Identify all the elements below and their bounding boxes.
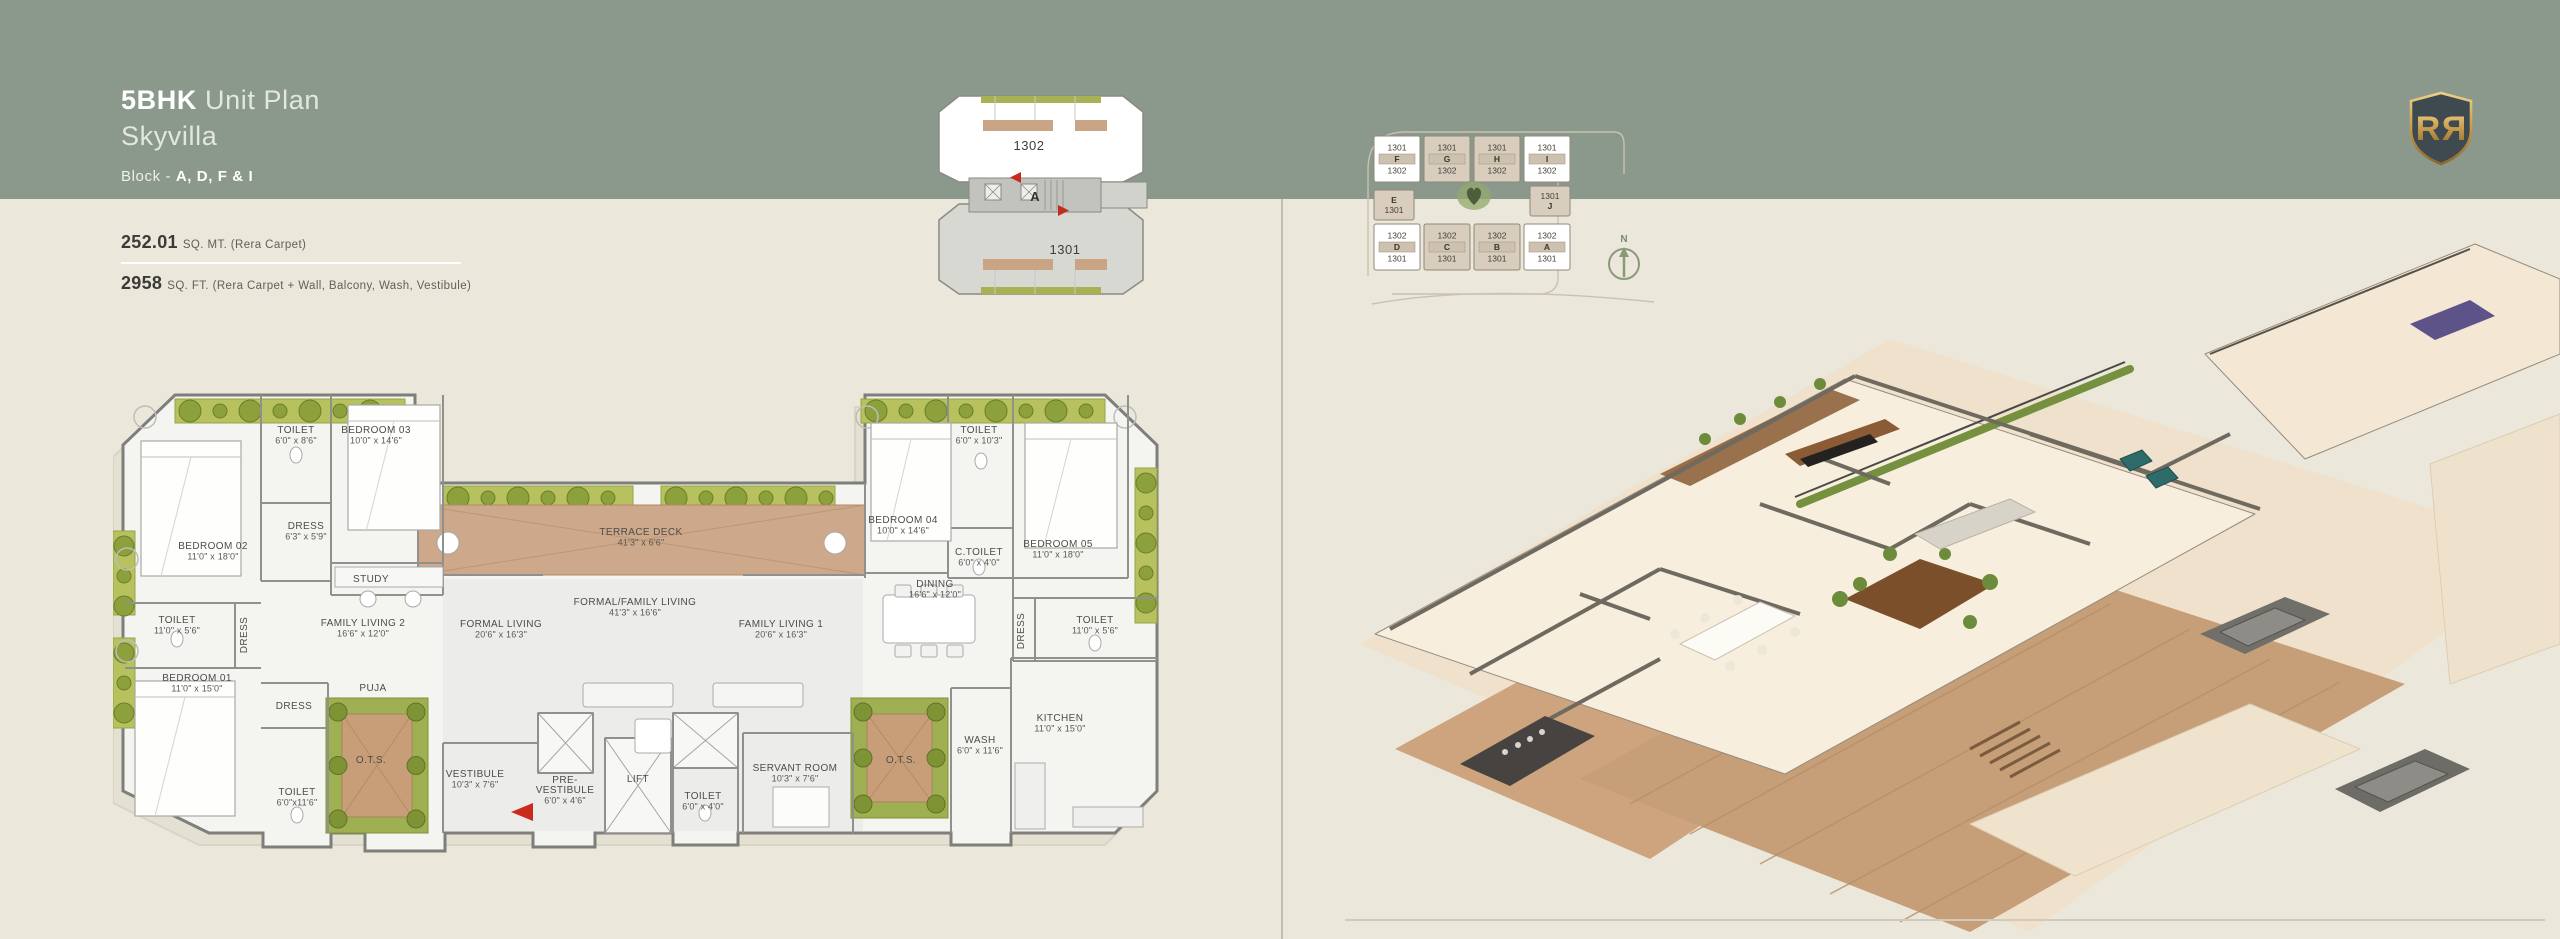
site-block-label: 1302 <box>1388 166 1407 176</box>
title-subtitle: Skyvilla <box>121 118 320 154</box>
title-bhk: 5BHK <box>121 85 197 115</box>
dining-chair <box>921 645 937 657</box>
tree <box>213 404 227 418</box>
site-block-label: 1301 <box>1488 143 1507 153</box>
study-desk <box>335 567 443 587</box>
room-label: C.TOILET6'0" x 4'0" <box>955 547 1003 568</box>
tree <box>927 795 945 813</box>
monogram-r: R <box>2416 110 2441 148</box>
site-block: 1301F1302 <box>1374 136 1420 182</box>
room-label: DRESS <box>239 617 250 653</box>
tree <box>407 757 425 775</box>
site-block: 1301G1302 <box>1424 136 1470 182</box>
room-label: DINING16'6" x 12'0" <box>909 579 961 600</box>
tree <box>407 703 425 721</box>
tree <box>985 400 1007 422</box>
tree <box>1045 400 1067 422</box>
title-rest: Unit Plan <box>197 85 320 115</box>
key-plan-unit-1302: 1302 <box>1014 138 1045 153</box>
site-block-label: H <box>1494 154 1500 164</box>
tree <box>329 810 347 828</box>
tree <box>179 400 201 422</box>
tree <box>1136 473 1156 493</box>
tree <box>854 703 872 721</box>
bed <box>135 681 235 816</box>
key-plan-planter-bottom <box>981 287 1101 294</box>
tree <box>299 400 321 422</box>
key-plan-footprint <box>939 96 1147 294</box>
tree <box>1079 404 1093 418</box>
site-block-label: 1302 <box>1488 166 1507 176</box>
panel-divider <box>1281 199 1283 939</box>
kitchen-counter-2d <box>1015 763 1045 829</box>
tree <box>601 491 615 505</box>
header-band <box>0 0 2560 199</box>
room-label: DRESS <box>1016 613 1027 649</box>
deck-chair <box>437 532 459 554</box>
tree <box>854 795 872 813</box>
tree <box>541 491 555 505</box>
room-label: O.T.S. <box>356 755 386 766</box>
tree <box>1139 566 1153 580</box>
block-line: Block - A, D, F & I <box>121 168 320 185</box>
room-label: KITCHEN11'0" x 15'0" <box>1034 713 1085 734</box>
room-label: TOILET6'0" x 8'6" <box>275 425 317 446</box>
planter-strip <box>861 399 1105 423</box>
servant-bed <box>773 787 829 827</box>
area-sqmt-label: SQ. MT. (Rera Carpet) <box>183 239 306 251</box>
tree <box>114 703 134 723</box>
tree <box>114 596 134 616</box>
tree <box>239 400 261 422</box>
site-block-label: 1301 <box>1538 143 1557 153</box>
room-label: LIFT <box>627 774 649 785</box>
tree <box>1019 404 1033 418</box>
tree <box>854 749 872 767</box>
bed <box>348 405 440 530</box>
tree <box>1136 593 1156 613</box>
block-value: A, D, F & I <box>176 168 253 185</box>
tree <box>927 703 945 721</box>
wc <box>975 453 987 469</box>
area-divider <box>121 262 461 264</box>
room-label: STUDY <box>353 574 389 585</box>
wc <box>291 807 303 823</box>
room-label: PUJA <box>359 683 386 694</box>
area-sqft-value: 2958 <box>121 273 162 293</box>
room-label: TOILET11'0" x 5'6" <box>154 615 200 636</box>
room-label: BEDROOM 0310'0" x 14'6" <box>341 425 411 446</box>
tree <box>329 703 347 721</box>
tree <box>117 569 131 583</box>
tree <box>1136 533 1156 553</box>
site-block-label: G <box>1444 154 1451 164</box>
dining-table <box>883 595 975 643</box>
tree <box>117 676 131 690</box>
area-sqmt-value: 252.01 <box>121 232 178 252</box>
dining-chair <box>895 645 911 657</box>
area-info: 252.01SQ. MT. (Rera Carpet) 2958SQ. FT. … <box>121 232 471 294</box>
study-chair <box>360 591 376 607</box>
area-sqft-label: SQ. FT. (Rera Carpet + Wall, Balcony, Wa… <box>167 280 471 292</box>
tree <box>927 749 945 767</box>
block-prefix: Block - <box>121 168 176 185</box>
tree <box>959 404 973 418</box>
tree <box>1139 506 1153 520</box>
dining-chair <box>947 645 963 657</box>
key-plan: 1302 1301 A <box>925 86 1157 304</box>
wc <box>1089 635 1101 651</box>
tree <box>407 810 425 828</box>
top-right-rooms <box>2205 244 2560 459</box>
brand-logo-shield: R R <box>2404 90 2478 166</box>
room-label: BEDROOM 0410'0" x 14'6" <box>868 515 938 536</box>
room-label: TOILET6'0"x11'6" <box>277 787 318 808</box>
page-title: 5BHK Unit Plan Skyvilla Block - A, D, F … <box>121 82 320 185</box>
room-label: TOILET6'0" x 10'3" <box>956 425 1003 446</box>
room-label: DRESS6'3" x 5'9" <box>285 521 327 542</box>
site-block: 1301H1302 <box>1474 136 1520 182</box>
room-label: VESTIBULE10'3" x 7'6" <box>446 769 505 790</box>
site-block: 1301I1302 <box>1524 136 1570 182</box>
study-chair <box>405 591 421 607</box>
tree <box>759 491 773 505</box>
floor-plan-2d: TOILET6'0" x 8'6"BEDROOM 0310'0" x 14'6"… <box>113 383 1168 863</box>
room-label: BEDROOM 0211'0" x 18'0" <box>178 541 248 562</box>
render-3d <box>1330 204 2560 934</box>
tree <box>333 404 347 418</box>
page: 5BHK Unit Plan Skyvilla Block - A, D, F … <box>0 0 2560 939</box>
room-label: O.T.S. <box>886 755 916 766</box>
sofa <box>583 683 673 707</box>
bed <box>1025 423 1117 548</box>
room-label: TOILET6'0" x 4'0" <box>682 791 724 812</box>
site-block-label: I <box>1546 154 1548 164</box>
site-block-label: 1302 <box>1438 166 1457 176</box>
coffee-table <box>635 719 671 753</box>
key-plan-block-letter: A <box>1030 189 1040 204</box>
wc <box>290 447 302 463</box>
site-block-label: 1301 <box>1541 191 1560 201</box>
room-label: BEDROOM 0111'0" x 15'0" <box>162 673 232 694</box>
tree <box>329 757 347 775</box>
room-label: BEDROOM 0511'0" x 18'0" <box>1023 539 1093 560</box>
tower-right <box>2430 414 2560 684</box>
tree <box>819 491 833 505</box>
site-block-label: 1301 <box>1388 143 1407 153</box>
kitchen-counter-2d <box>1073 807 1143 827</box>
monogram-r-mirrored: R <box>2442 110 2467 148</box>
tree <box>925 400 947 422</box>
tree <box>481 491 495 505</box>
site-block-label: 1301 <box>1438 143 1457 153</box>
room-label: TOILET11'0" x 5'6" <box>1072 615 1118 636</box>
area-sqft: 2958SQ. FT. (Rera Carpet + Wall, Balcony… <box>121 273 471 294</box>
key-plan-planter-top <box>981 96 1101 103</box>
site-block-label: F <box>1394 154 1399 164</box>
sofa <box>713 683 803 707</box>
tree <box>699 491 713 505</box>
deck-chair <box>824 532 846 554</box>
tree <box>899 404 913 418</box>
site-block-label: 1302 <box>1538 166 1557 176</box>
room-label: DRESS <box>276 701 312 712</box>
area-sqmt: 252.01SQ. MT. (Rera Carpet) <box>121 232 471 253</box>
tree <box>273 404 287 418</box>
key-plan-unit-1301: 1301 <box>1050 242 1081 257</box>
